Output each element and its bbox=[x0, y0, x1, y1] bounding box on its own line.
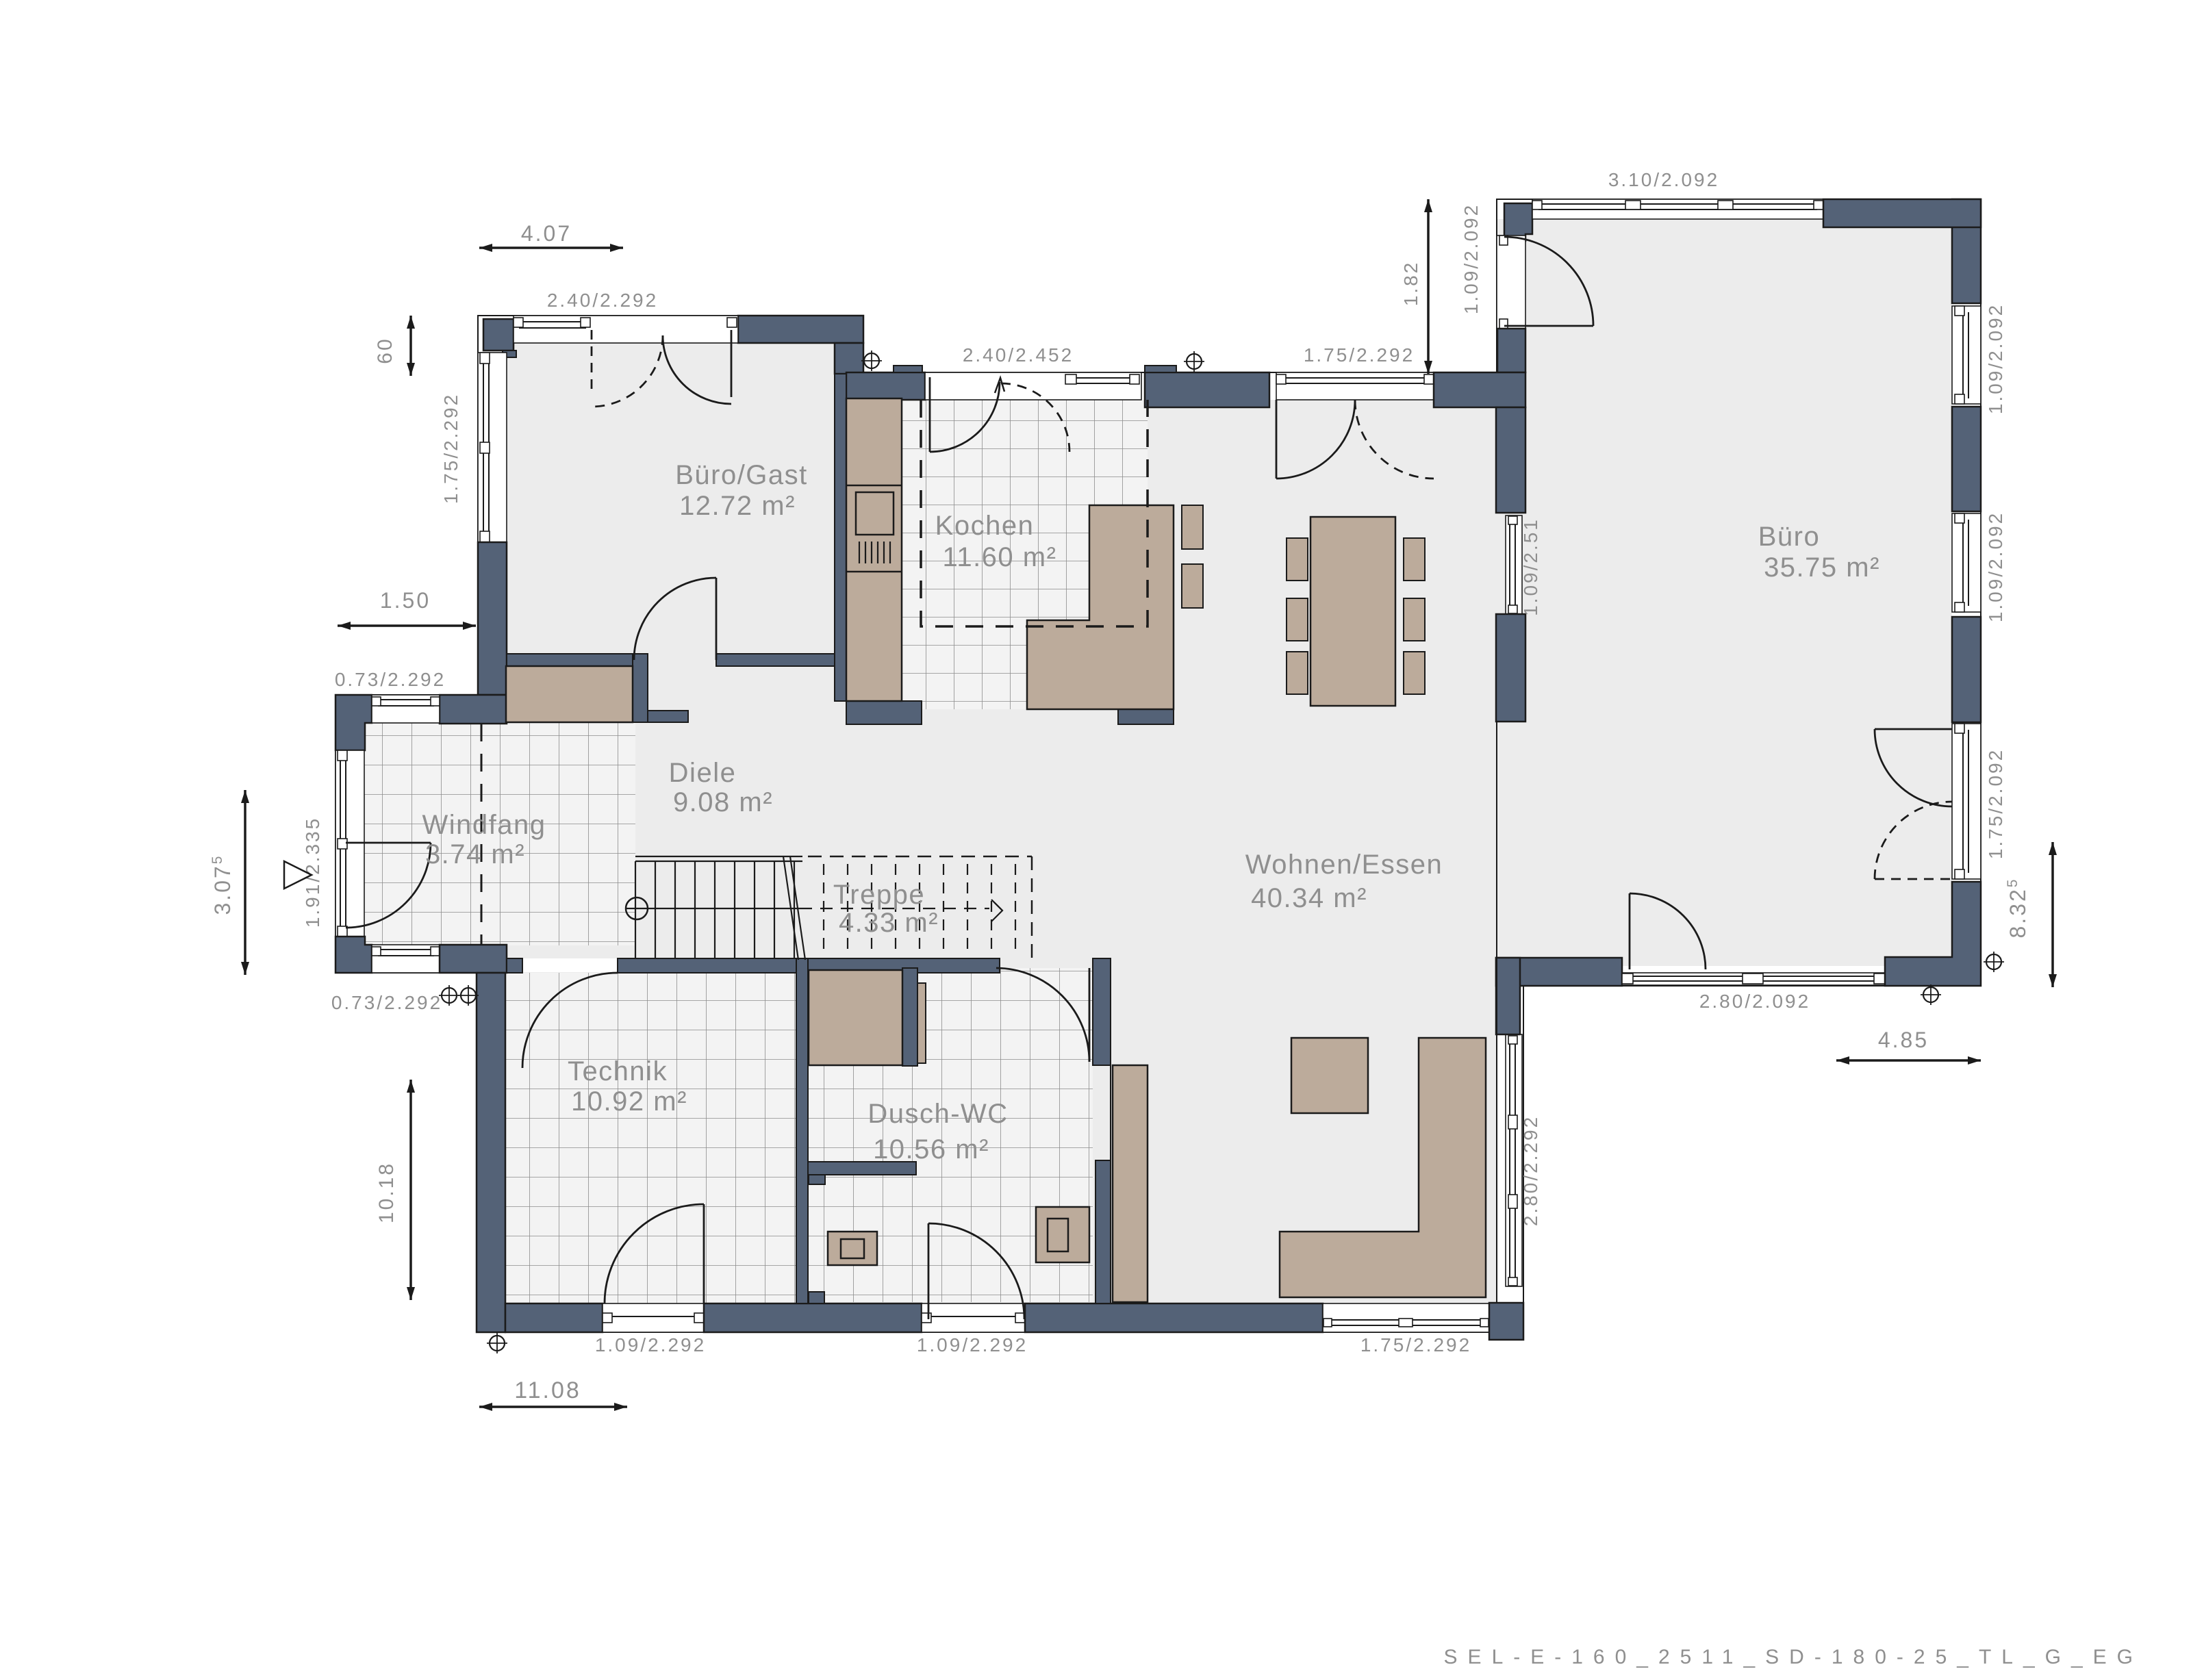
svg-text:3.10/2.092: 3.10/2.092 bbox=[1608, 169, 1719, 190]
svg-text:1.09/2.092: 1.09/2.092 bbox=[1985, 511, 2006, 622]
svg-text:12.72 m²: 12.72 m² bbox=[679, 491, 796, 521]
svg-text:60: 60 bbox=[374, 337, 396, 364]
svg-text:8.325: 8.325 bbox=[2005, 878, 2030, 939]
svg-text:Dusch-WC: Dusch-WC bbox=[867, 1099, 1008, 1129]
svg-text:9.08 m²: 9.08 m² bbox=[673, 787, 773, 817]
svg-text:1.75/2.292: 1.75/2.292 bbox=[1360, 1334, 1471, 1356]
svg-text:3.075: 3.075 bbox=[210, 854, 235, 915]
svg-text:10.92 m²: 10.92 m² bbox=[571, 1086, 687, 1117]
svg-text:Treppe: Treppe bbox=[833, 880, 925, 910]
svg-text:1.09/2.092: 1.09/2.092 bbox=[1460, 203, 1482, 314]
svg-text:1.75/2.292: 1.75/2.292 bbox=[1304, 344, 1415, 366]
svg-text:10.18: 10.18 bbox=[375, 1162, 398, 1223]
svg-text:SEL-E-160_2511_SD-180-25_TL_G_: SEL-E-160_2511_SD-180-25_TL_G_EG bbox=[1444, 1646, 2143, 1668]
svg-text:1.09/2.292: 1.09/2.292 bbox=[595, 1334, 706, 1356]
svg-text:1.09/2.292: 1.09/2.292 bbox=[917, 1334, 1028, 1356]
svg-text:2.40/2.452: 2.40/2.452 bbox=[963, 344, 1074, 366]
svg-text:1.09/2.51: 1.09/2.51 bbox=[1520, 518, 1541, 616]
svg-text:1.75/2.092: 1.75/2.092 bbox=[1985, 748, 2006, 859]
svg-text:40.34 m²: 40.34 m² bbox=[1251, 883, 1367, 913]
svg-text:35.75 m²: 35.75 m² bbox=[1764, 552, 1880, 583]
svg-text:1.50: 1.50 bbox=[380, 588, 431, 613]
svg-text:4.85: 4.85 bbox=[1878, 1028, 1929, 1052]
svg-text:1.09/2.092: 1.09/2.092 bbox=[1985, 303, 2006, 414]
svg-text:11.08: 11.08 bbox=[514, 1377, 581, 1403]
svg-text:4.33 m²: 4.33 m² bbox=[839, 908, 939, 938]
svg-text:Kochen: Kochen bbox=[935, 511, 1035, 541]
svg-text:11.60 m²: 11.60 m² bbox=[943, 542, 1057, 572]
svg-text:Wohnen/Essen: Wohnen/Essen bbox=[1245, 850, 1443, 880]
svg-text:Windfang: Windfang bbox=[422, 810, 546, 840]
svg-text:4.07: 4.07 bbox=[521, 221, 572, 246]
svg-text:Büro/Gast: Büro/Gast bbox=[675, 460, 808, 490]
svg-text:Diele: Diele bbox=[669, 758, 737, 788]
svg-text:1.75/2.292: 1.75/2.292 bbox=[440, 393, 461, 504]
svg-text:0.73/2.292: 0.73/2.292 bbox=[331, 992, 442, 1013]
svg-text:Büro: Büro bbox=[1758, 522, 1821, 552]
svg-text:2.80/2.292: 2.80/2.292 bbox=[1520, 1115, 1541, 1226]
svg-text:Technik: Technik bbox=[568, 1056, 668, 1086]
svg-text:2.40/2.292: 2.40/2.292 bbox=[547, 290, 658, 311]
svg-text:3.74 m²: 3.74 m² bbox=[425, 839, 525, 869]
svg-text:10.56 m²: 10.56 m² bbox=[873, 1134, 989, 1164]
svg-text:2.80/2.092: 2.80/2.092 bbox=[1699, 991, 1810, 1012]
svg-text:1.82: 1.82 bbox=[1400, 261, 1421, 307]
svg-text:0.73/2.292: 0.73/2.292 bbox=[335, 669, 446, 690]
